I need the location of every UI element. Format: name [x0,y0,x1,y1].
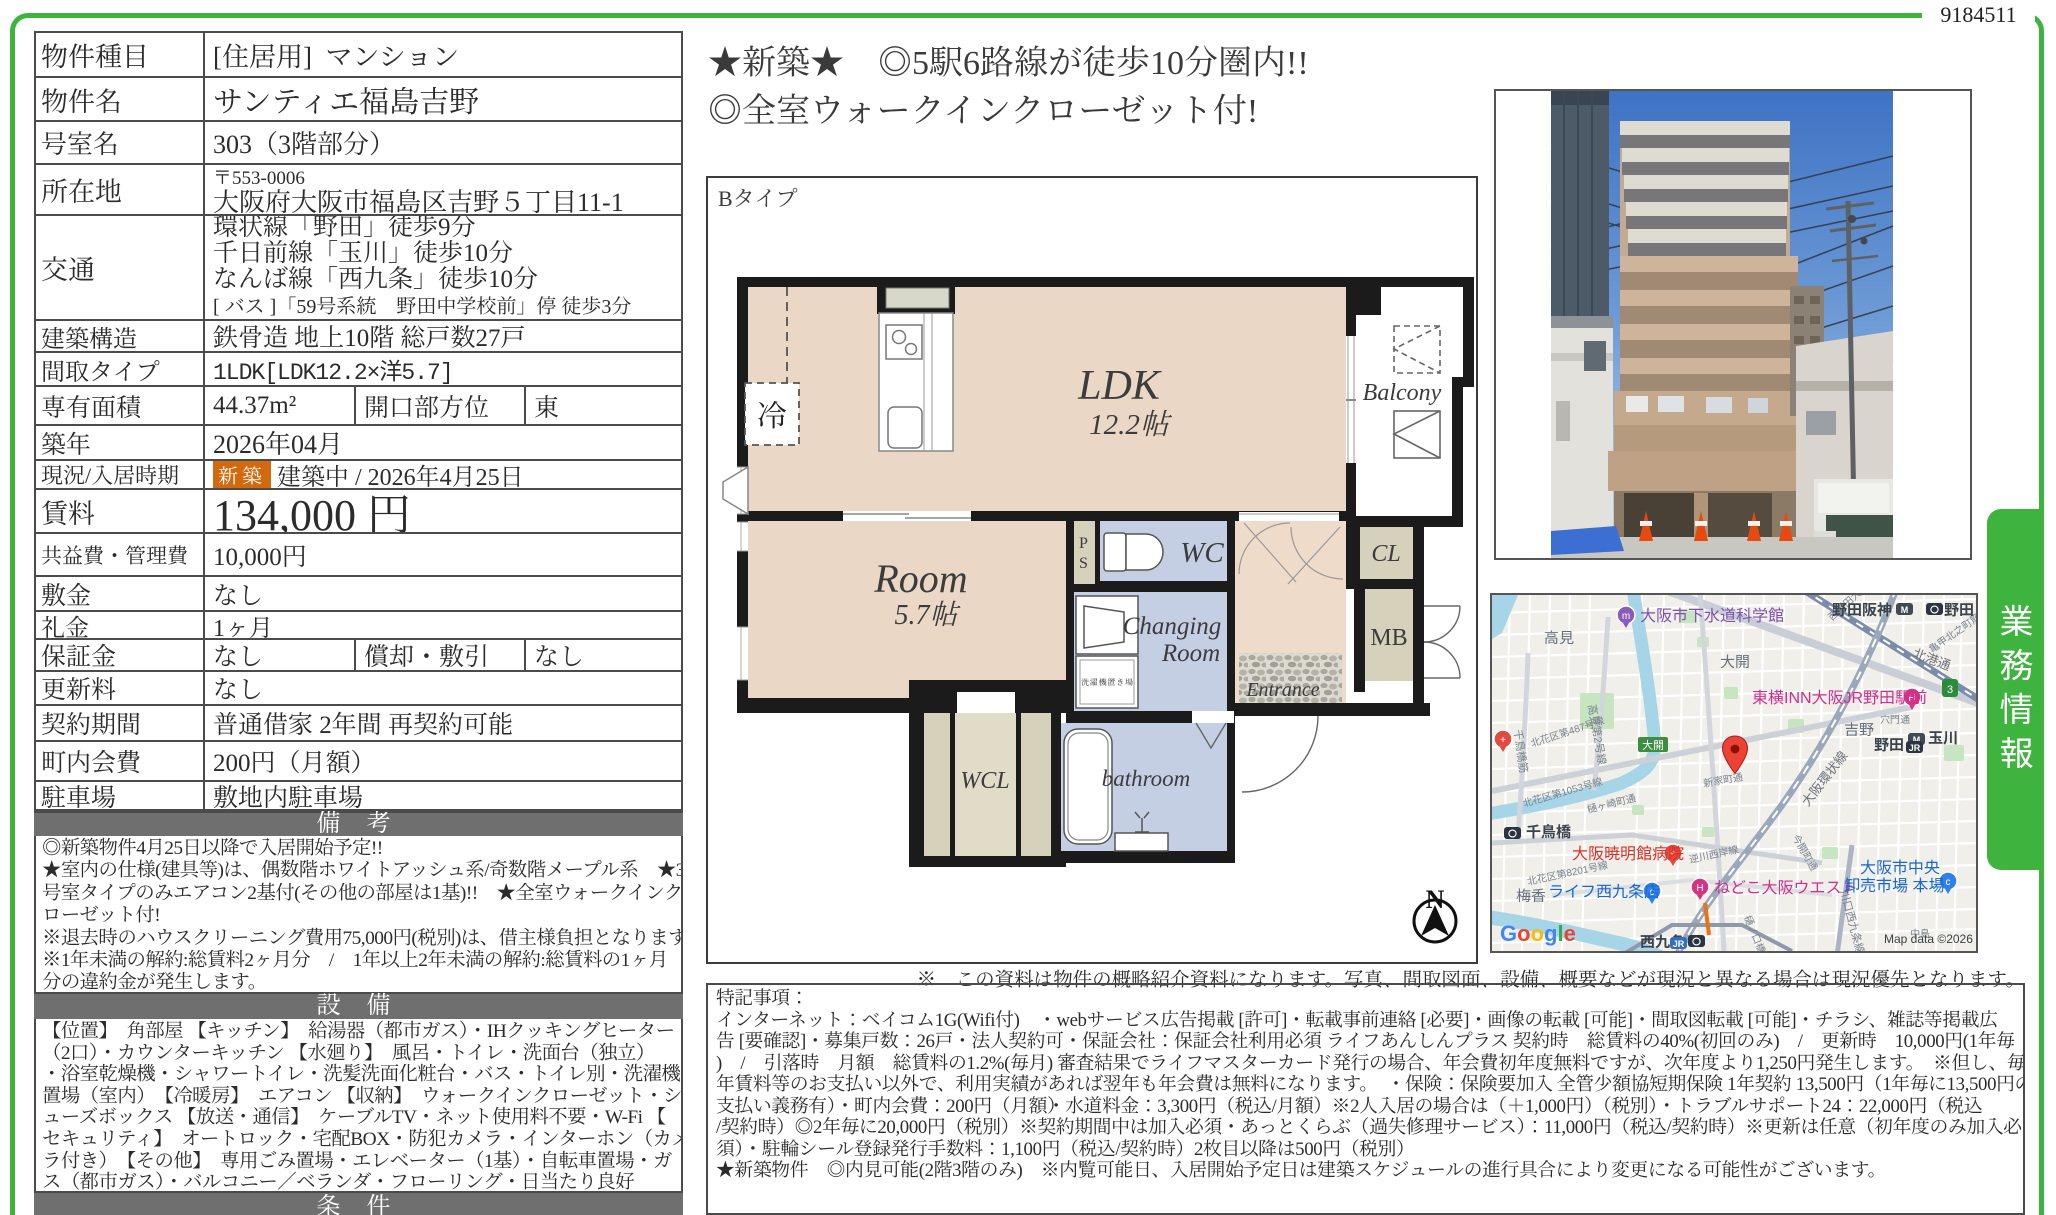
svg-text:大阪市下水道科学館: 大阪市下水道科学館 [1640,607,1784,625]
svg-text:WCL: WCL [960,768,1009,794]
svg-text:MB: MB [1370,625,1407,651]
svg-text:冷: 冷 [757,400,787,433]
svg-text:Entrance: Entrance [1245,679,1319,701]
svg-text:M: M [1901,605,1909,615]
svg-text:Google: Google [1500,921,1576,946]
svg-text:野田: 野田 [1944,602,1974,619]
svg-text:大開: 大開 [1720,654,1750,671]
svg-text:c: c [1946,877,1951,888]
svg-text:玉川: 玉川 [1928,730,1958,747]
svg-text:千鳥橋: 千鳥橋 [1526,823,1572,841]
svg-text:CL: CL [1371,541,1400,567]
svg-text:WC: WC [1180,537,1224,569]
svg-text:Map data ©2026: Map data ©2026 [1884,932,1973,946]
svg-text:JR: JR [1673,939,1685,949]
svg-text:穴門通: 穴門通 [1880,714,1910,726]
svg-text:P: P [1079,535,1088,552]
svg-text:〇: 〇 [1508,829,1517,839]
svg-text:S: S [1079,555,1088,572]
svg-text:LDK: LDK [1077,363,1162,409]
svg-text:東横INN大阪JR野田駅前: 東横INN大阪JR野田駅前 [1752,689,1927,707]
svg-text:大阪市中央: 大阪市中央 [1860,859,1940,877]
svg-text:卸売市場 本場: 卸売市場 本場 [1844,876,1944,895]
svg-text:JR: JR [1909,743,1921,753]
svg-text:bathroom: bathroom [1102,766,1191,791]
svg-text:高見: 高見 [1544,630,1574,647]
svg-text:H: H [1696,883,1703,894]
svg-text:ライフ西九条店: ライフ西九条店 [1548,883,1660,901]
svg-text:野田: 野田 [1874,737,1904,754]
svg-text:ねどこ大阪ウエスト: ねどこ大阪ウエスト [1714,879,1858,897]
svg-text:12.2帖: 12.2帖 [1089,409,1173,441]
svg-text:〇: 〇 [1930,605,1939,615]
svg-text:5.7帖: 5.7帖 [894,600,961,631]
svg-text:Balcony: Balcony [1363,380,1442,406]
svg-text:大開: 大開 [1642,740,1664,752]
svg-text:Room: Room [873,556,967,601]
svg-text:Changing: Changing [1123,613,1222,640]
svg-text:野田阪神: 野田阪神 [1832,601,1892,619]
svg-text:大阪暁明館病院: 大阪暁明館病院 [1572,845,1684,863]
svg-text:Room: Room [1161,640,1220,667]
svg-text:+: + [1500,735,1506,746]
svg-text:Bタイプ: Bタイプ [718,186,798,211]
svg-text:〇: 〇 [1692,937,1701,947]
svg-text:3: 3 [1947,684,1953,696]
svg-text:梅香: 梅香 [1516,887,1546,905]
svg-text:洗濯機置き場: 洗濯機置き場 [1081,678,1133,687]
svg-text:m: m [1622,611,1630,622]
svg-text:吉野: 吉野 [1844,722,1874,739]
